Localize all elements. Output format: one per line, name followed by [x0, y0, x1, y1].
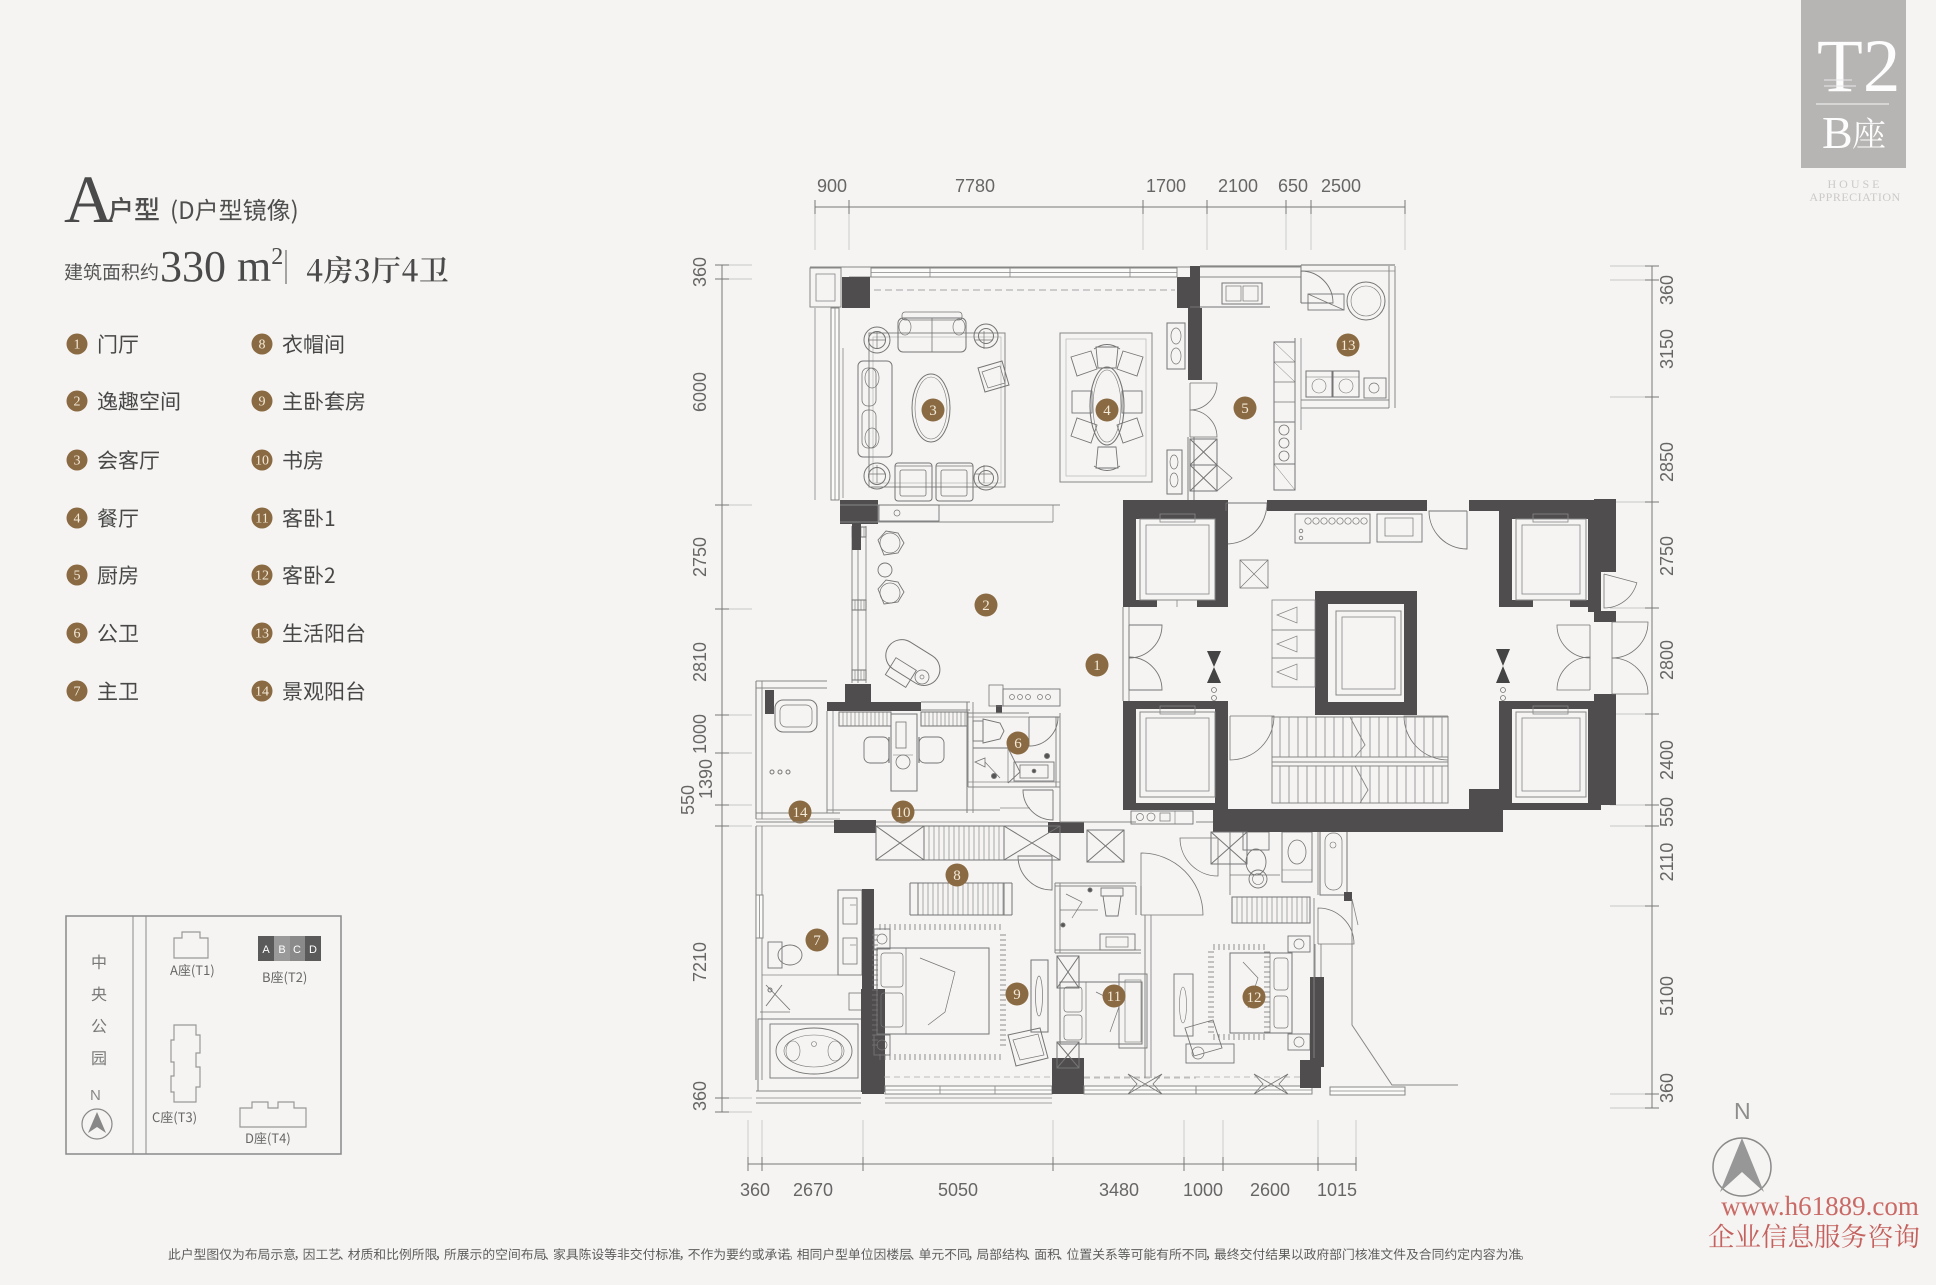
- svg-text:3480: 3480: [1099, 1180, 1139, 1200]
- svg-text:14: 14: [255, 685, 269, 700]
- svg-text:2: 2: [74, 395, 81, 410]
- svg-text:HOUSE: HOUSE: [1827, 177, 1882, 191]
- svg-text:12: 12: [255, 569, 269, 584]
- svg-text:14: 14: [793, 805, 809, 821]
- svg-text:APPRECIATION: APPRECIATION: [1809, 190, 1900, 204]
- svg-text:9: 9: [259, 395, 266, 410]
- svg-text:2100: 2100: [1218, 176, 1258, 196]
- svg-text:6: 6: [1014, 736, 1022, 752]
- svg-text:1000: 1000: [1183, 1180, 1223, 1200]
- svg-text:5100: 5100: [1657, 976, 1677, 1016]
- svg-text:2850: 2850: [1657, 442, 1677, 482]
- svg-text:7: 7: [74, 685, 81, 700]
- svg-text:A: A: [262, 944, 270, 956]
- svg-text:3150: 3150: [1657, 329, 1677, 369]
- svg-text:10: 10: [255, 454, 269, 469]
- svg-text:1: 1: [74, 338, 81, 353]
- svg-text:330 m2: 330 m2: [160, 242, 283, 291]
- svg-text:13: 13: [1341, 338, 1356, 354]
- svg-text:900: 900: [817, 176, 847, 196]
- svg-text:12: 12: [1247, 990, 1262, 1006]
- svg-text:2800: 2800: [1657, 640, 1677, 680]
- svg-text:360: 360: [1657, 275, 1677, 305]
- svg-text:B: B: [1822, 107, 1853, 158]
- svg-text:360: 360: [690, 257, 710, 287]
- svg-text:6: 6: [74, 627, 81, 642]
- svg-text:2600: 2600: [1250, 1180, 1290, 1200]
- svg-text:6000: 6000: [690, 372, 710, 412]
- svg-text:1000: 1000: [690, 714, 710, 754]
- svg-text:N: N: [90, 1087, 101, 1104]
- svg-text:2750: 2750: [690, 537, 710, 577]
- svg-text:T2: T2: [1817, 25, 1900, 108]
- svg-text:2: 2: [982, 598, 990, 614]
- svg-text:360: 360: [1657, 1073, 1677, 1103]
- svg-text:2810: 2810: [690, 642, 710, 682]
- svg-text:4: 4: [1103, 403, 1111, 419]
- svg-text:7: 7: [813, 933, 821, 949]
- svg-text:7210: 7210: [690, 942, 710, 982]
- svg-text:B: B: [278, 944, 285, 956]
- svg-text:10: 10: [896, 805, 911, 821]
- svg-text:3: 3: [929, 403, 937, 419]
- svg-text:www.h61889.com: www.h61889.com: [1721, 1191, 1919, 1221]
- svg-text:11: 11: [255, 512, 268, 527]
- svg-text:8: 8: [953, 868, 961, 884]
- svg-text:550: 550: [1657, 797, 1677, 827]
- svg-text:550: 550: [678, 785, 698, 815]
- svg-text:11: 11: [1107, 989, 1121, 1005]
- svg-text:7780: 7780: [955, 176, 995, 196]
- svg-text:5050: 5050: [938, 1180, 978, 1200]
- svg-text:2400: 2400: [1657, 740, 1677, 780]
- svg-text:N: N: [1734, 1098, 1751, 1124]
- svg-text:2500: 2500: [1321, 176, 1361, 196]
- svg-text:1015: 1015: [1317, 1180, 1357, 1200]
- svg-text:650: 650: [1278, 176, 1308, 196]
- svg-text:D: D: [309, 944, 317, 956]
- svg-text:5: 5: [74, 569, 81, 584]
- svg-text:C: C: [293, 944, 301, 956]
- svg-text:3: 3: [74, 454, 81, 469]
- svg-text:2670: 2670: [793, 1180, 833, 1200]
- svg-text:4: 4: [74, 512, 81, 527]
- svg-text:2750: 2750: [1657, 536, 1677, 576]
- svg-text:2110: 2110: [1657, 843, 1677, 882]
- svg-text:9: 9: [1013, 987, 1021, 1003]
- svg-text:1390: 1390: [696, 759, 716, 799]
- svg-text:13: 13: [255, 627, 269, 642]
- svg-text:360: 360: [690, 1081, 710, 1111]
- svg-text:360: 360: [740, 1180, 770, 1200]
- svg-text:1700: 1700: [1146, 176, 1186, 196]
- svg-text:1: 1: [1093, 658, 1101, 674]
- svg-text:8: 8: [259, 338, 266, 353]
- svg-text:5: 5: [1241, 401, 1249, 417]
- svg-text:A: A: [64, 161, 113, 237]
